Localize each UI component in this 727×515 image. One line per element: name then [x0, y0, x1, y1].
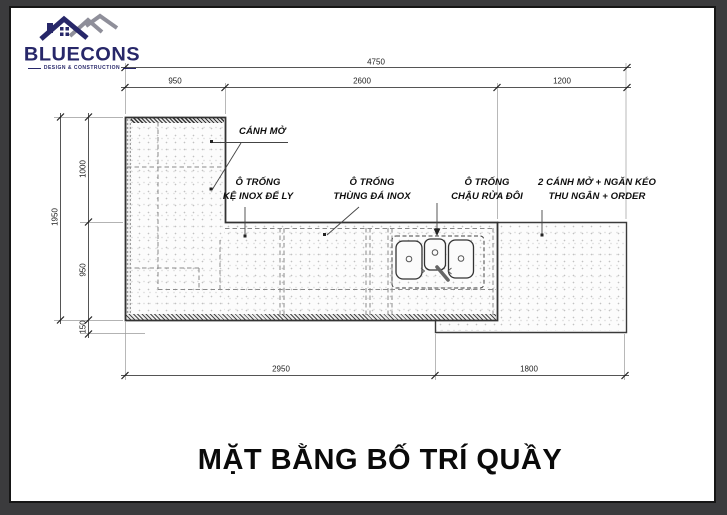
label-slot-shelf-line2: KỆ INOX ĐỂ LY	[223, 191, 293, 202]
dim-top-seg-1200: 1200	[553, 77, 571, 86]
dim-left-seg-950: 950	[79, 263, 88, 276]
dim-top-overall: 4750	[367, 58, 385, 67]
drawing-title: MẶT BẰNG BỐ TRÍ QUẦY	[198, 444, 562, 477]
cashier-counter-surface	[497, 223, 625, 331]
dim-left-overall: 1950	[51, 208, 60, 226]
counter-top-edge-band	[126, 118, 224, 123]
canvas: BLUECONS DESIGN & CONSTRUCTION 4750 950 …	[0, 0, 727, 515]
dim-left-seg-150: 150	[79, 320, 88, 333]
logo-wordmark: BLUECONS	[20, 46, 144, 63]
counter-left-edge-band	[126, 118, 131, 318]
label-cashier-line2: THU NGÂN + ORDER	[549, 191, 646, 202]
label-door-open: CÁNH MỞ	[239, 126, 286, 137]
dim-left-seg-1000: 1000	[79, 160, 88, 178]
label-slot-icebin-line2: THÙNG ĐÁ INOX	[333, 191, 410, 202]
company-logo: BLUECONS DESIGN & CONSTRUCTION	[20, 11, 144, 71]
label-slot-sink-line1: Ô TRỐNG	[464, 177, 509, 188]
counter-bottom-arm-surface	[224, 223, 496, 319]
counter-bottom-edge-band	[126, 314, 496, 320]
counter-left-arm-surface	[126, 118, 224, 319]
dim-bottom-seg-1800: 1800	[520, 365, 538, 374]
label-cashier-line1: 2 CÁNH MỞ + NGĂN KÉO	[538, 177, 656, 188]
label-slot-sink-line2: CHẬU RỬA ĐÔI	[451, 191, 523, 202]
logo-tagline-rule-left	[28, 68, 41, 69]
logo-tagline: DESIGN & CONSTRUCTION	[20, 65, 144, 71]
label-slot-icebin-line1: Ô TRỐNG	[349, 177, 394, 188]
dim-bottom-seg-2950: 2950	[272, 365, 290, 374]
label-slot-shelf-line1: Ô TRỐNG	[235, 177, 280, 188]
cashier-counter-front-ledge	[436, 321, 497, 331]
logo-roof-icon	[36, 11, 128, 41]
dim-top-seg-2600: 2600	[353, 77, 371, 86]
logo-tagline-rule-right	[123, 68, 136, 69]
dim-top-seg-950: 950	[168, 77, 181, 86]
logo-tagline-text: DESIGN & CONSTRUCTION	[44, 65, 120, 71]
